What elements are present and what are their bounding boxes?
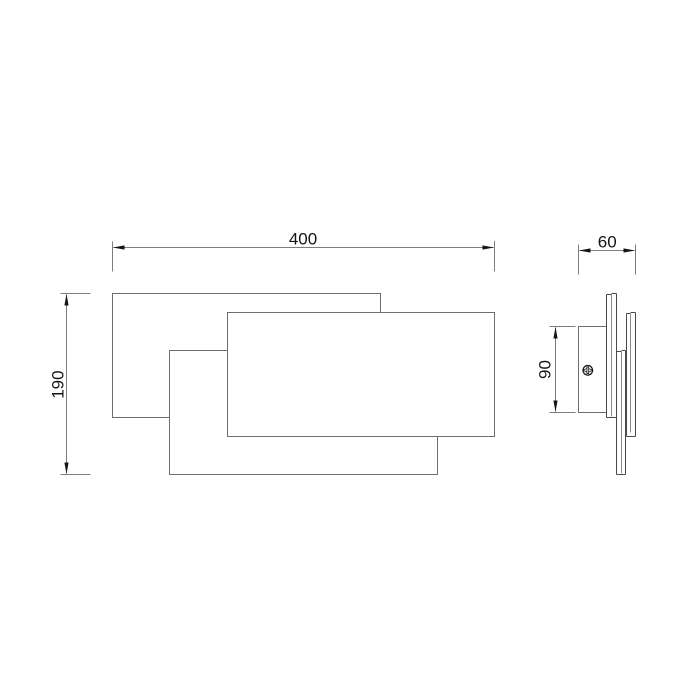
svg-text:60: 60 <box>598 232 617 251</box>
svg-text:190: 190 <box>49 370 68 398</box>
svg-text:400: 400 <box>289 230 317 249</box>
svg-text:90: 90 <box>536 360 555 379</box>
